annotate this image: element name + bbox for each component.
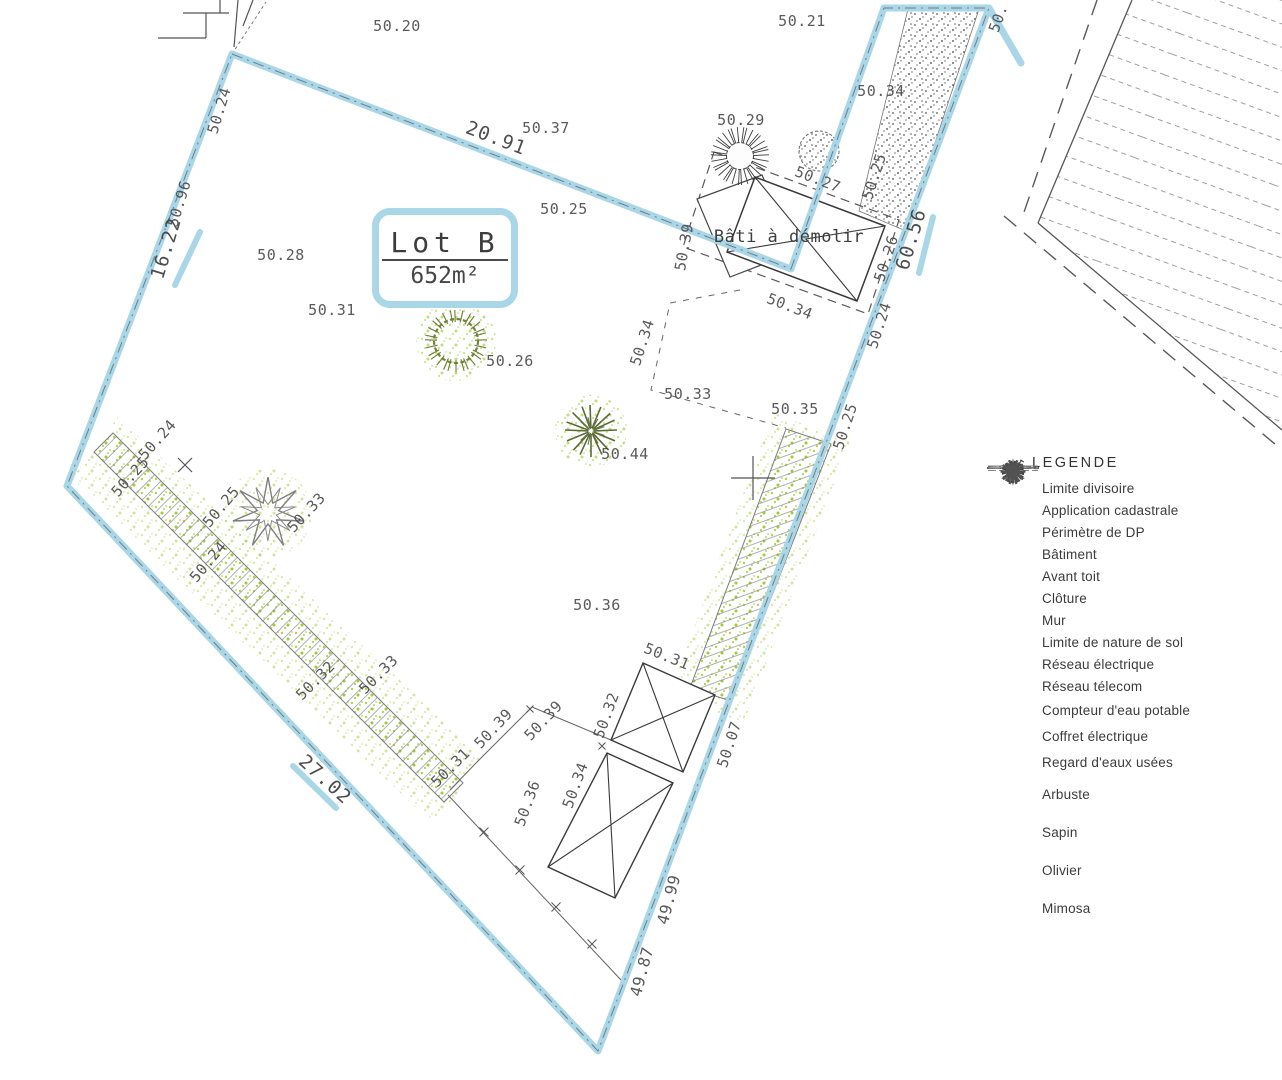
legend-item-reseau-electrique: Réseau électrique [986,653,1246,675]
legend-label: Olivier [1042,863,1082,878]
tree-arbuste [416,301,496,381]
legend-label: Compteur d'eau potable [1042,703,1190,718]
legend: LEGENDE Limite divisoireApplication cada… [986,455,1246,927]
legend-label: Mimosa [1042,901,1090,916]
legend-label: Bâtiment [1042,547,1097,562]
legend-item-arbuste: Arbuste [986,775,1246,813]
elevation-label: 50.28 [257,246,305,264]
legend-label: Application cadastrale [1042,503,1178,518]
elevation-label: 50.44 [601,445,649,463]
elevation-label: 50.25 [540,200,588,218]
elevation-label: 50.35 [771,400,819,418]
elevation-label: 50.39 [671,222,697,272]
lot-callout: Lot B 652m² [372,208,518,308]
elevation-label: 50.26 [486,352,534,370]
elevation-label: 50.34 [626,317,658,368]
legend-item-limite-nature-sol: Limite de nature de sol [986,631,1246,653]
lot-name: Lot B [382,229,507,261]
legend-label: Clôture [1042,591,1087,606]
legend-item-olivier: Olivier [986,851,1246,889]
legend-label: Avant toit [1042,569,1100,584]
legend-item-regard-eaux: Regard d'eaux usées [986,749,1246,775]
elevation-label: 50.34 [764,289,815,323]
legend-item-coffret-electrique: Coffret électrique [986,723,1246,749]
legend-item-mimosa: Mimosa [986,889,1246,927]
lot-area: 652m² [410,265,479,288]
elevation-label: 50.29 [717,111,765,129]
legend-label: Coffret électrique [1042,729,1148,744]
legend-label: Mur [1042,613,1066,628]
hatch-area [1038,0,1282,430]
site-plan: 50.2050.2150.2450.9616.2220.9150.3750.25… [0,0,1282,1080]
legend-label: Périmètre de DP [1042,525,1145,540]
elevation-label: 50.20 [373,17,421,35]
elevation-label: 50.36 [573,596,621,614]
legend-item-perimetre-dp: Périmètre de DP [986,521,1246,543]
elevation-label: 50.39 [521,697,567,744]
legend-item-compteur-eau: Compteur d'eau potable [986,697,1246,723]
elevation-label: 50.34 [857,82,905,100]
legend-item-sapin: Sapin [986,813,1246,851]
legend-item-avant-toit: Avant toit [986,565,1246,587]
elevation-label: 50.33 [664,385,712,403]
building-to-demolish-lower-2 [548,753,673,898]
legend-label: Réseau télecom [1042,679,1142,694]
legend-label: Limite divisoire [1042,481,1134,496]
survey-x-mark [178,458,192,472]
neighbor-structure-fragment [158,0,266,54]
legend-label: Regard d'eaux usées [1042,755,1173,770]
legend-item-reseau-telecom: Réseau télecom [986,675,1246,697]
elevation-label: 50.36 [511,778,544,829]
legend-items: Limite divisoireApplication cadastralePé… [986,477,1246,927]
elevation-label: 50.31 [308,301,356,319]
legend-label: Limite de nature de sol [1042,635,1183,650]
bati-demolir-label: Bâti à démolir [714,227,864,247]
legend-item-application-cadastrale: Application cadastrale [986,499,1246,521]
legend-item-batiment: Bâtiment [986,543,1246,565]
cadastral-dashed-line [651,290,786,428]
legend-item-mur: Mur [986,609,1246,631]
legend-item-cloture: Clôture [986,587,1246,609]
legend-label: Arbuste [1042,787,1090,802]
legend-label: Réseau électrique [1042,657,1154,672]
elevation-label: 50.21 [778,12,826,30]
elevation-label: 50.37 [522,119,570,137]
neighbor-building-hatched [1004,0,1282,450]
legend-label: Sapin [1042,825,1078,840]
